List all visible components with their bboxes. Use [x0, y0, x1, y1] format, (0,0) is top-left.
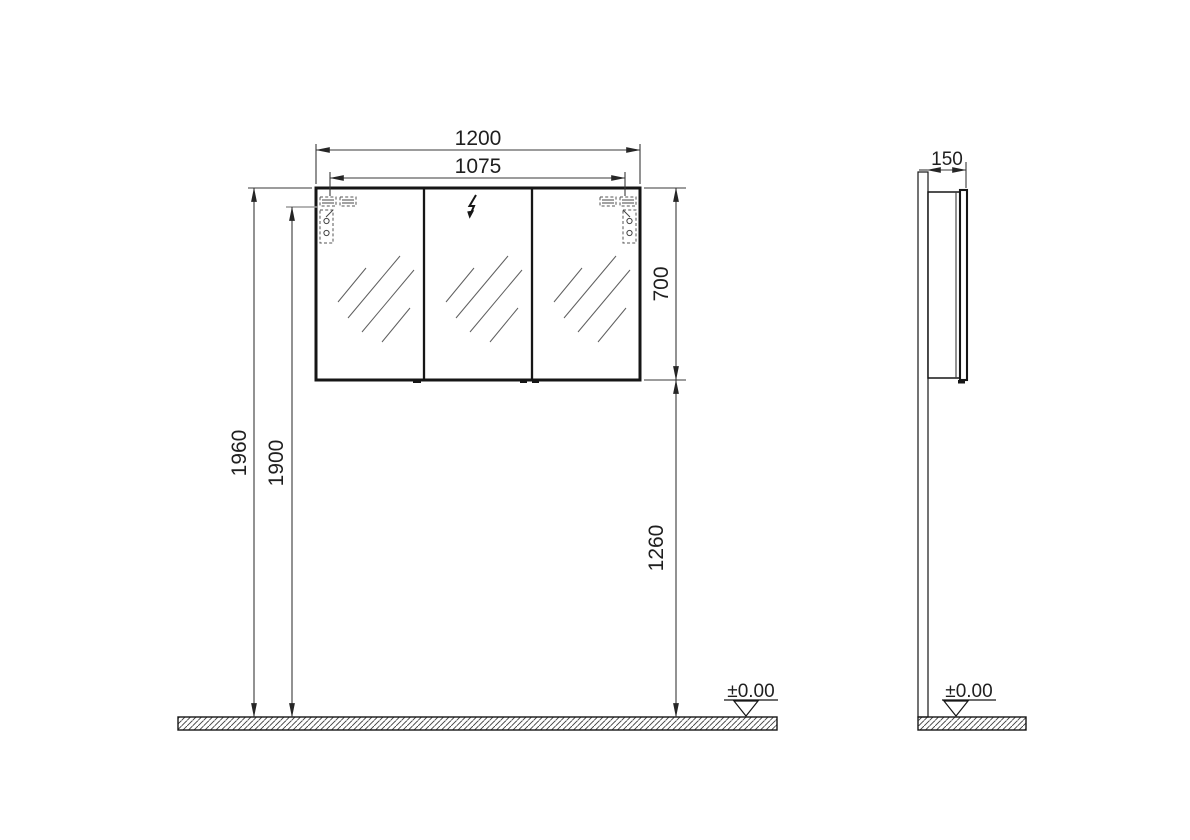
- side-view: 150 ±0.00: [918, 149, 1026, 730]
- bottom-tab: [958, 380, 965, 384]
- dim-label-1900: 1900: [265, 440, 288, 487]
- mirror-cabinet-drawing: 1200 1075 700 1960 1900: [0, 0, 1190, 840]
- floor-level-marker-side: ±0.00: [942, 681, 996, 716]
- dimension-hinge-height: 1900: [265, 207, 318, 717]
- level-triangle-icon: [734, 701, 758, 716]
- front-view: 1200 1075 700 1960 1900: [178, 127, 778, 730]
- cabinet-side-profile: [928, 190, 967, 384]
- dim-label-700: 700: [650, 266, 673, 301]
- dimension-cabinet-height: 700: [644, 188, 686, 380]
- bottom-tab: [532, 379, 539, 383]
- floor-level-marker-front: ±0.00: [724, 681, 778, 716]
- level-label-front: ±0.00: [727, 681, 774, 702]
- dim-label-1075: 1075: [455, 155, 502, 178]
- bottom-tab: [520, 379, 527, 383]
- dim-label-1200: 1200: [455, 127, 502, 150]
- bottom-tab: [413, 379, 421, 383]
- dimension-depth: 150: [919, 149, 966, 188]
- dim-label-1960: 1960: [228, 430, 251, 477]
- level-label-side: ±0.00: [945, 681, 992, 702]
- dim-label-150: 150: [931, 149, 963, 170]
- dim-label-1260: 1260: [645, 525, 668, 572]
- cabinet-outline: [316, 188, 640, 380]
- floor-section-front: [178, 717, 777, 730]
- dimension-underside-clearance: 1260: [645, 380, 676, 717]
- wall-section: [918, 172, 928, 717]
- technical-drawing-canvas: 1200 1075 700 1960 1900: [0, 0, 1190, 840]
- floor-section-side: [918, 717, 1026, 730]
- level-triangle-icon: [944, 701, 968, 716]
